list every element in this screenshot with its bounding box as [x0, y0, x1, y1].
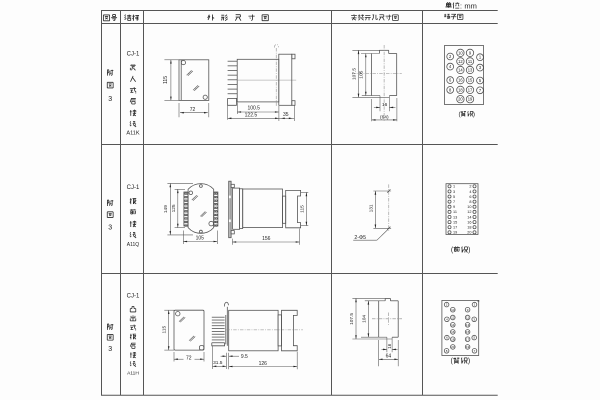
svg-text:17: 17: [453, 226, 457, 230]
svg-text:20: 20: [451, 345, 455, 349]
svg-text:105: 105: [359, 70, 365, 78]
svg-text:100.5: 100.5: [247, 106, 260, 112]
svg-text:): ): [468, 247, 470, 254]
svg-text:19: 19: [453, 231, 457, 235]
svg-text:3: 3: [108, 225, 112, 232]
svg-text:15: 15: [466, 330, 470, 334]
svg-text:5: 5: [453, 195, 455, 199]
svg-text:9: 9: [453, 205, 455, 209]
svg-text:105: 105: [196, 236, 205, 242]
svg-text:7: 7: [453, 200, 455, 204]
svg-text:125: 125: [171, 204, 177, 212]
svg-text:10: 10: [467, 205, 471, 209]
svg-text:156: 156: [262, 236, 271, 242]
svg-text:10: 10: [451, 308, 455, 312]
svg-text:14: 14: [467, 215, 471, 219]
svg-text:16: 16: [387, 343, 392, 349]
svg-text:131: 131: [369, 204, 375, 212]
svg-text:107.5: 107.5: [349, 313, 355, 325]
svg-text:2: 2: [469, 185, 471, 189]
svg-text:CJ-1: CJ-1: [127, 185, 140, 191]
svg-text:149: 149: [163, 205, 169, 213]
svg-text:10: 10: [458, 50, 463, 55]
svg-text:3: 3: [453, 190, 455, 194]
svg-text:20: 20: [467, 231, 471, 235]
svg-text:3: 3: [108, 346, 112, 353]
svg-text:13: 13: [468, 67, 473, 72]
svg-text:16: 16: [458, 78, 463, 83]
svg-text:115: 115: [161, 325, 167, 333]
svg-text:18: 18: [458, 87, 463, 92]
svg-text:6: 6: [469, 195, 471, 199]
svg-text:17: 17: [468, 87, 473, 92]
svg-text:19: 19: [468, 97, 473, 102]
svg-text:64: 64: [386, 354, 392, 360]
svg-text:11: 11: [453, 210, 457, 214]
svg-text:A11Q: A11Q: [127, 242, 140, 248]
svg-text:115: 115: [299, 205, 305, 213]
svg-text:115: 115: [163, 76, 169, 84]
svg-text:35: 35: [283, 112, 289, 118]
svg-text:15: 15: [468, 78, 473, 83]
svg-text:107.5: 107.5: [351, 68, 357, 80]
svg-text:12: 12: [467, 210, 471, 214]
svg-text:11: 11: [466, 316, 469, 320]
svg-text:9.5: 9.5: [241, 354, 248, 360]
svg-text:A11K: A11K: [126, 131, 140, 137]
svg-text:mm: mm: [464, 2, 477, 11]
svg-text:12: 12: [451, 316, 455, 320]
svg-text:16: 16: [467, 220, 471, 224]
svg-text:(64): (64): [380, 115, 389, 121]
svg-text:126: 126: [259, 361, 268, 367]
svg-text:31.5: 31.5: [213, 360, 223, 366]
svg-text:16: 16: [451, 330, 455, 334]
svg-text:3: 3: [108, 96, 112, 103]
svg-text:72: 72: [186, 356, 192, 362]
svg-text:8: 8: [469, 200, 471, 204]
svg-text:13: 13: [466, 323, 470, 327]
svg-text:16: 16: [382, 102, 388, 108]
svg-text:104: 104: [361, 315, 367, 323]
svg-text:2-Φ5: 2-Φ5: [354, 235, 366, 241]
svg-text:CJ-1: CJ-1: [127, 294, 140, 300]
svg-text:A11H: A11H: [127, 370, 139, 376]
svg-text:122.5: 122.5: [245, 113, 258, 119]
svg-text:): ): [468, 358, 470, 365]
svg-text:): ): [473, 111, 475, 118]
svg-text:18: 18: [467, 226, 471, 230]
svg-text:17: 17: [466, 337, 470, 341]
svg-text:12: 12: [458, 59, 463, 64]
svg-text:72: 72: [190, 107, 196, 113]
svg-text:CJ-1: CJ-1: [127, 51, 140, 57]
svg-text:13: 13: [453, 215, 457, 219]
svg-text:14: 14: [451, 323, 455, 327]
svg-text::: :: [460, 4, 462, 11]
svg-text:4: 4: [469, 190, 471, 194]
svg-text:1: 1: [453, 185, 455, 189]
svg-text:11: 11: [468, 59, 473, 64]
svg-text:14: 14: [458, 67, 463, 72]
svg-text:18: 18: [451, 337, 455, 341]
svg-text:19: 19: [466, 345, 470, 349]
svg-text:15: 15: [453, 220, 457, 224]
svg-text:20: 20: [458, 97, 463, 102]
